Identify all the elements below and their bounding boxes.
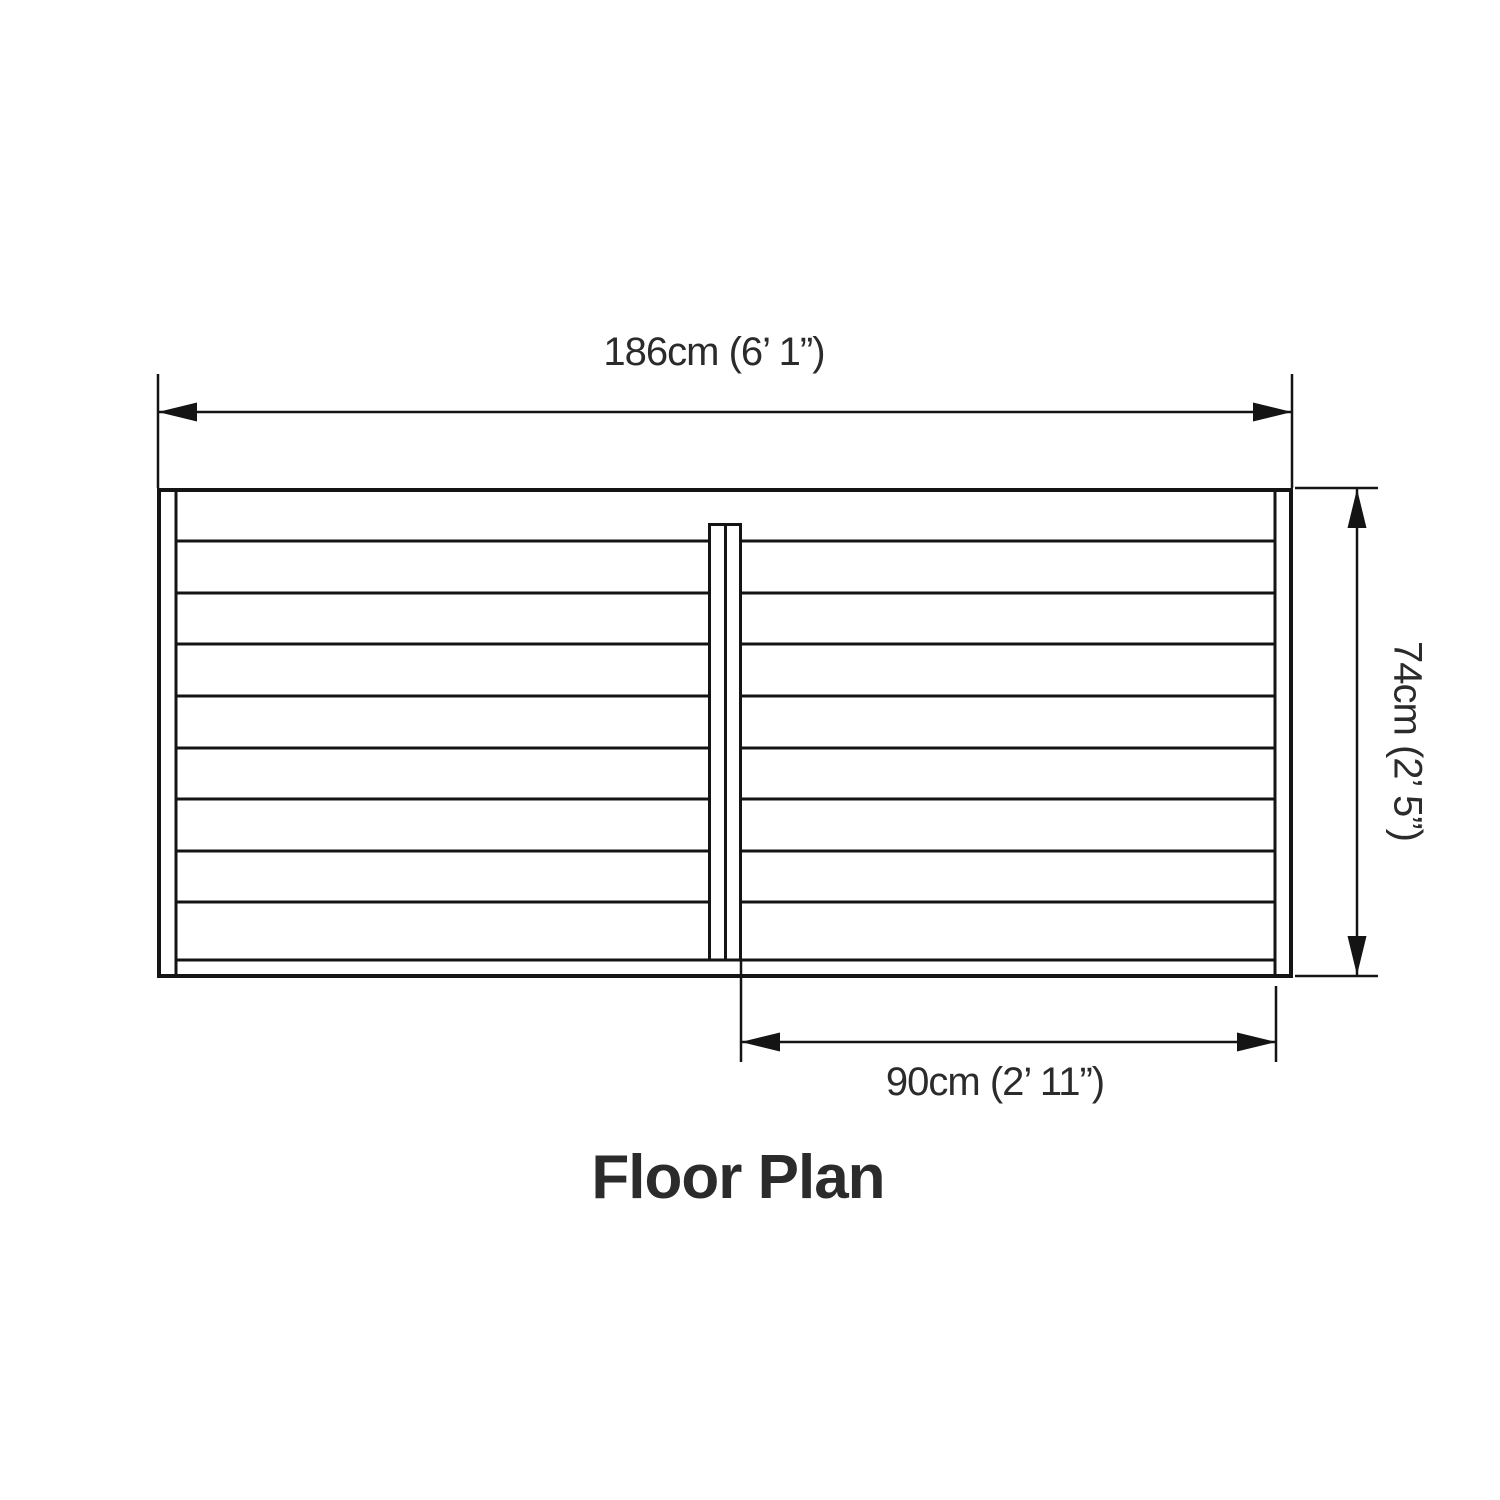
arrow-down-icon xyxy=(1348,936,1367,975)
diagram-title: Floor Plan xyxy=(591,1142,884,1213)
arrow-right-icon xyxy=(1237,1033,1276,1052)
arrow-up-icon xyxy=(1348,489,1367,528)
arrow-left-icon xyxy=(741,1033,780,1052)
width-dimension xyxy=(158,374,1292,488)
center-divider xyxy=(708,523,742,960)
floor-plan-drawing xyxy=(0,0,1500,1500)
height-dimension-label: 74cm (2’ 5”) xyxy=(1385,641,1430,841)
width-dimension-label: 186cm (6’ 1”) xyxy=(603,330,824,375)
door-dimension-label: 90cm (2’ 11”) xyxy=(886,1060,1104,1105)
arrow-left-icon xyxy=(158,403,197,422)
height-dimension xyxy=(1295,488,1378,976)
floor-plan-page: 186cm (6’ 1”) 74cm (2’ 5”) 90cm (2’ 11”)… xyxy=(0,0,1500,1500)
arrow-right-icon xyxy=(1253,403,1292,422)
